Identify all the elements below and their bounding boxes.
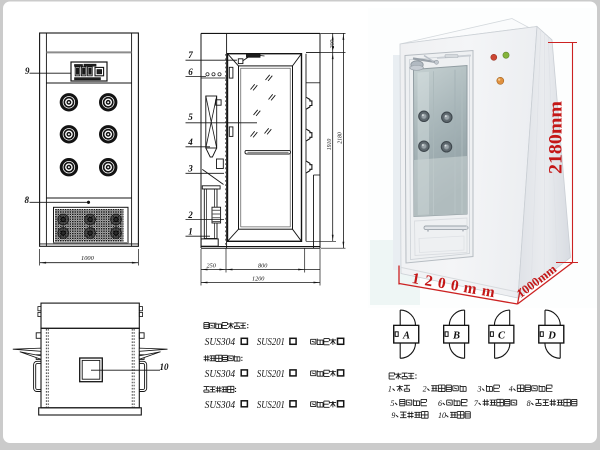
- svg-text:2: 2: [423, 385, 427, 394]
- svg-text:5: 5: [390, 399, 394, 408]
- svg-text:1910: 1910: [327, 139, 333, 151]
- svg-text:9: 9: [25, 66, 30, 76]
- svg-text:800: 800: [258, 262, 268, 269]
- svg-text:200: 200: [330, 40, 336, 49]
- svg-text:B: B: [452, 331, 460, 342]
- svg-text:2180mm: 2180mm: [546, 101, 567, 174]
- svg-text:SUS201: SUS201: [257, 337, 285, 348]
- svg-text:3: 3: [477, 385, 482, 394]
- svg-text:9: 9: [391, 411, 395, 420]
- svg-text:A: A: [402, 331, 410, 342]
- svg-text:4: 4: [509, 385, 513, 394]
- svg-text:1000: 1000: [81, 255, 95, 262]
- svg-text:D: D: [547, 331, 556, 342]
- svg-text:1: 1: [188, 227, 193, 237]
- svg-text:SUS304: SUS304: [205, 369, 236, 380]
- svg-text:8: 8: [527, 399, 531, 408]
- svg-text:250: 250: [207, 262, 217, 269]
- svg-text:SUS201: SUS201: [257, 400, 285, 411]
- svg-text:1: 1: [388, 385, 392, 394]
- svg-text:8: 8: [25, 195, 30, 205]
- svg-text:2: 2: [187, 210, 193, 220]
- svg-text:SUS304: SUS304: [205, 337, 236, 348]
- svg-text:SUS304: SUS304: [205, 400, 236, 411]
- svg-text:2180: 2180: [337, 132, 343, 144]
- svg-text:3: 3: [187, 164, 193, 174]
- svg-text:6: 6: [188, 67, 193, 77]
- svg-text:1200: 1200: [252, 275, 265, 282]
- svg-text:6: 6: [438, 399, 442, 408]
- svg-text:10: 10: [438, 411, 446, 420]
- svg-text:C: C: [498, 331, 506, 342]
- svg-text:SUS201: SUS201: [257, 369, 285, 380]
- svg-text:4: 4: [187, 137, 193, 147]
- svg-text:5: 5: [188, 112, 193, 122]
- svg-text:10: 10: [160, 362, 170, 372]
- svg-text:7: 7: [188, 50, 193, 60]
